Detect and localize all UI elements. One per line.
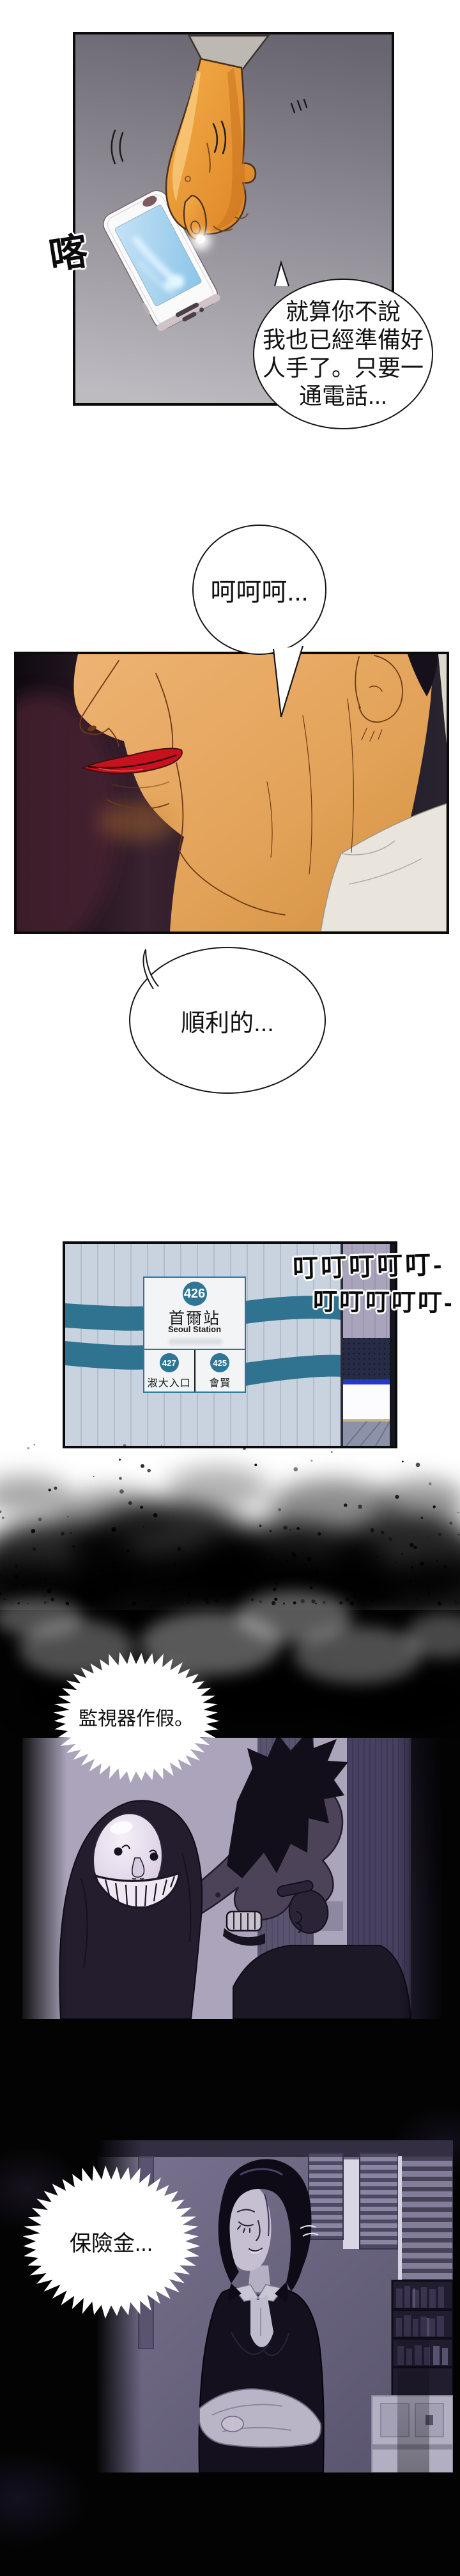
speech-bubble-caller: 就算你不說 我也已經準備好 人手了。只要一 通電話... (253, 279, 433, 429)
creepy-mask-figure (59, 1800, 202, 2019)
panel-face-closeup (14, 652, 449, 934)
burst-text: 保險金... (70, 2226, 153, 2257)
bubble-tail-caller (273, 261, 293, 287)
bubble-tail-smooth (133, 948, 161, 990)
speech-line: 我也已經準備好 (263, 326, 424, 354)
station-sign: 426 首爾站 Seoul Station 427 淑大入口 425 會賢 (143, 1276, 246, 1393)
speech-line: 呵呵呵... (210, 571, 308, 608)
hand-illustration (166, 59, 256, 240)
speech-line: 人手了。只要一 (263, 354, 424, 382)
burst-text: 監視器作假。 (79, 1703, 194, 1731)
sfx-ringing-line2: 叮叮叮叮叮- (313, 1282, 454, 1318)
sign-smudge (169, 1338, 222, 1345)
burst-bubble-cctv: 監視器作假。 (48, 1646, 224, 1787)
sfx-ringing-line1: 叮叮叮叮叮- (292, 1244, 445, 1285)
next-station-name: 會賢 (195, 1374, 245, 1390)
burst-bubble-insurance: 保險金... (17, 2160, 205, 2322)
station-number-badge: 426 (183, 1282, 207, 1306)
face-closeup-illustration (17, 654, 447, 931)
adjacent-stations-row: 427 淑大入口 425 會賢 (144, 1349, 245, 1391)
speech-line: 通電話... (263, 382, 424, 410)
bubble-tail-laugh (271, 644, 305, 719)
speech-bubble-laugh: 呵呵呵... (192, 525, 326, 655)
next-station-badge: 425 (210, 1353, 229, 1372)
speech-line: 順利的... (181, 1003, 274, 1038)
touch-glow (190, 230, 211, 250)
webtoon-page: 喀 就算你不說 我也已經準備好 人手了。只要一 通電話... 呵呵呵... (0, 0, 460, 2576)
next-station-cell: 425 會賢 (195, 1350, 245, 1391)
prev-station-cell: 427 淑大入口 (144, 1350, 195, 1391)
speech-line: 就算你不說 (263, 298, 424, 326)
station-name-english: Seoul Station (144, 1324, 245, 1334)
prev-station-badge: 427 (160, 1353, 179, 1372)
prev-station-name: 淑大入口 (144, 1374, 194, 1390)
